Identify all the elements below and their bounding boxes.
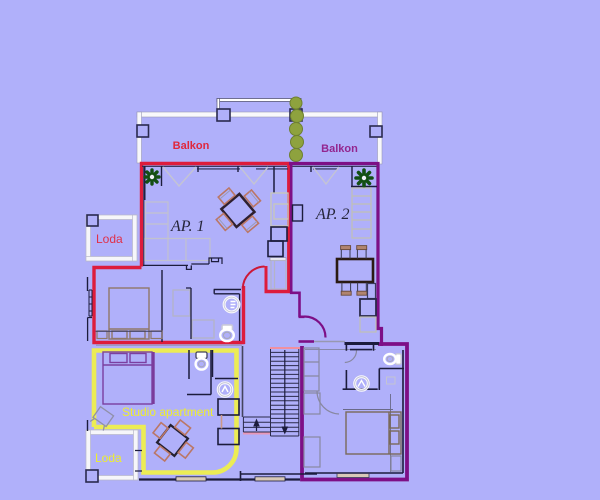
svg-text:Loda: Loda	[96, 232, 123, 246]
svg-text:AP. 1: AP. 1	[170, 218, 204, 235]
svg-text:AP. 2: AP. 2	[315, 206, 349, 223]
svg-text:Balkon: Balkon	[173, 140, 210, 152]
svg-text:Balkon: Balkon	[321, 143, 358, 155]
svg-text:Studio apartment: Studio apartment	[122, 405, 214, 419]
svg-text:Loda: Loda	[95, 451, 122, 465]
